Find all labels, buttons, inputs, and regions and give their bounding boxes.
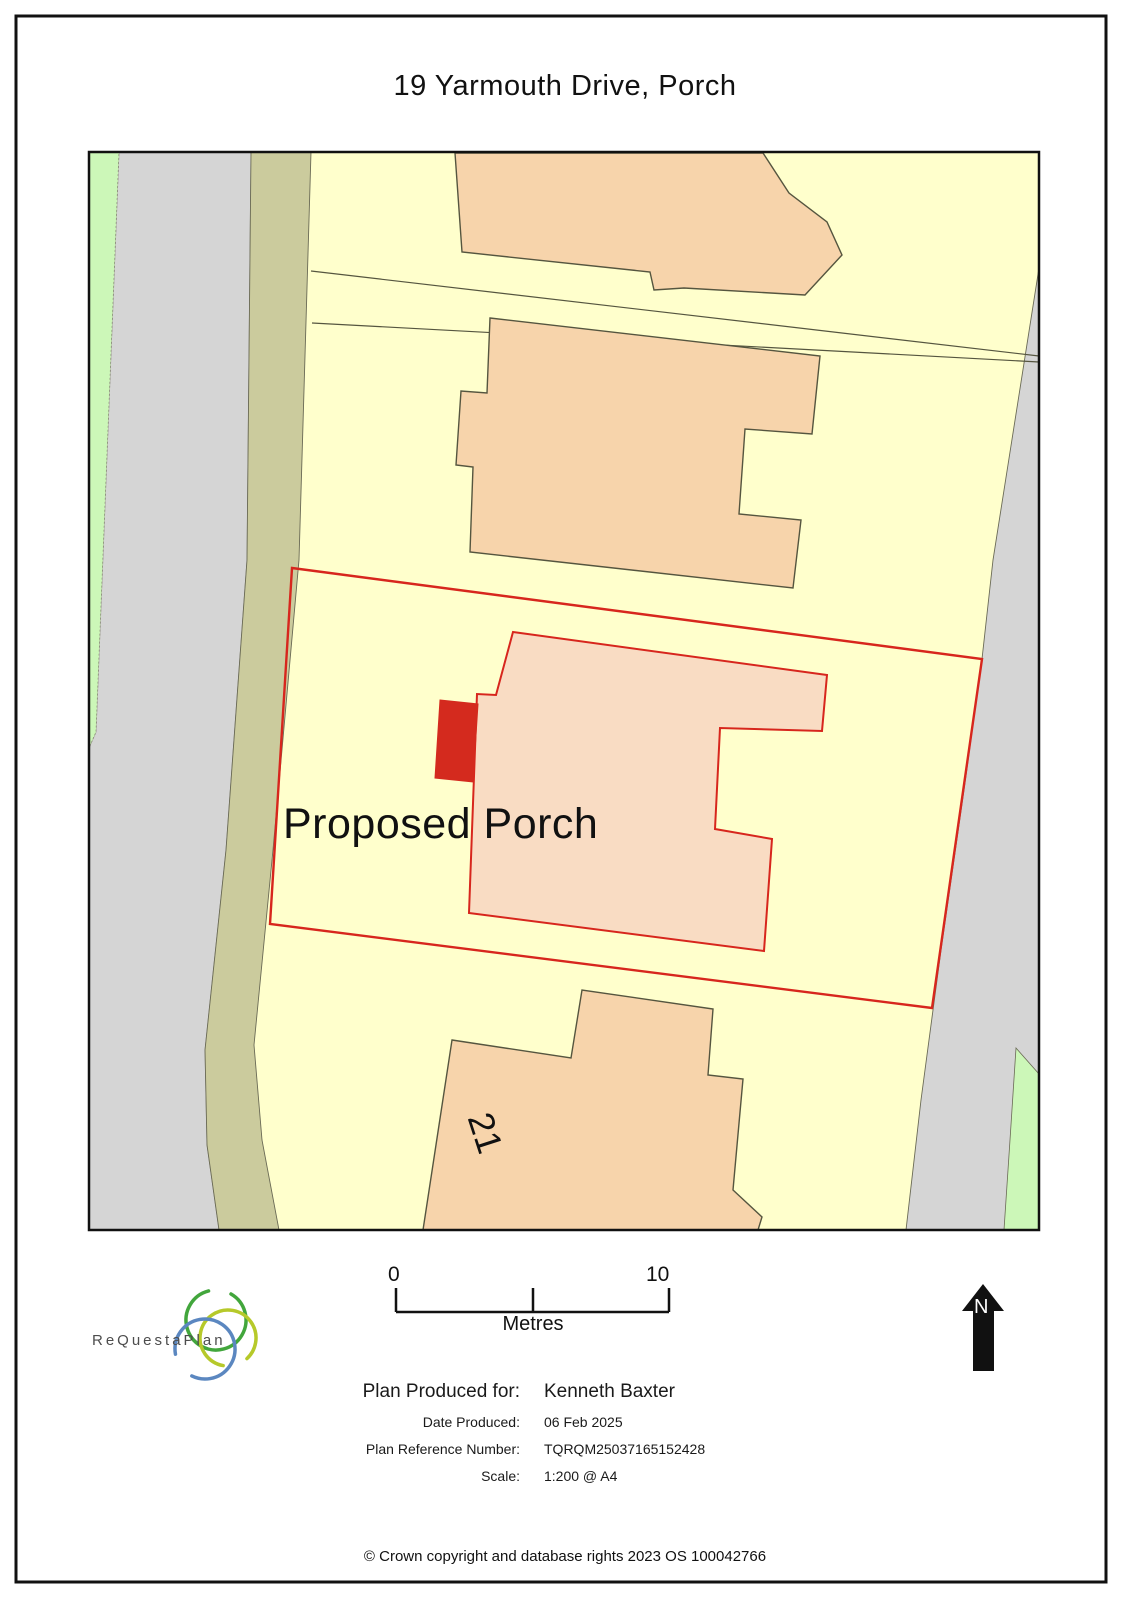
scale-bar-end-label: 10 [646,1263,669,1287]
detail-row-reference: Plan Reference Number:TQRQM2503716515242… [190,1441,705,1457]
plan-reference-value: TQRQM25037165152428 [544,1441,705,1457]
scale-bar-start-label: 0 [388,1263,400,1287]
plan-reference-label: Plan Reference Number: [190,1441,520,1457]
copyright-notice: © Crown copyright and database rights 20… [0,1548,1130,1565]
detail-row-date: Date Produced:06 Feb 2025 [190,1414,623,1430]
logo-wordmark: ReQuestaPlan [92,1332,226,1349]
page-title: 19 Yarmouth Drive, Porch [0,70,1130,103]
proposed-porch-label: Proposed Porch [283,800,598,849]
date-produced-label: Date Produced: [190,1414,520,1430]
plan-page: 19 Yarmouth Drive, Porch Proposed Porch … [0,0,1130,1600]
produced-for-label: Plan Produced for: [190,1381,520,1403]
scale-bar-unit-label: Metres [468,1313,598,1336]
date-produced-value: 06 Feb 2025 [544,1414,623,1430]
scale-value: 1:200 @ A4 [544,1468,617,1484]
scale-label: Scale: [190,1468,520,1484]
scale-bar [396,1288,669,1312]
detail-row-scale: Scale:1:200 @ A4 [190,1468,617,1484]
north-arrow-label: N [974,1296,988,1319]
detail-row-produced-for: Plan Produced for:Kenneth Baxter [190,1381,675,1403]
produced-for-value: Kenneth Baxter [544,1381,675,1403]
proposed-porch-shape [435,700,478,782]
